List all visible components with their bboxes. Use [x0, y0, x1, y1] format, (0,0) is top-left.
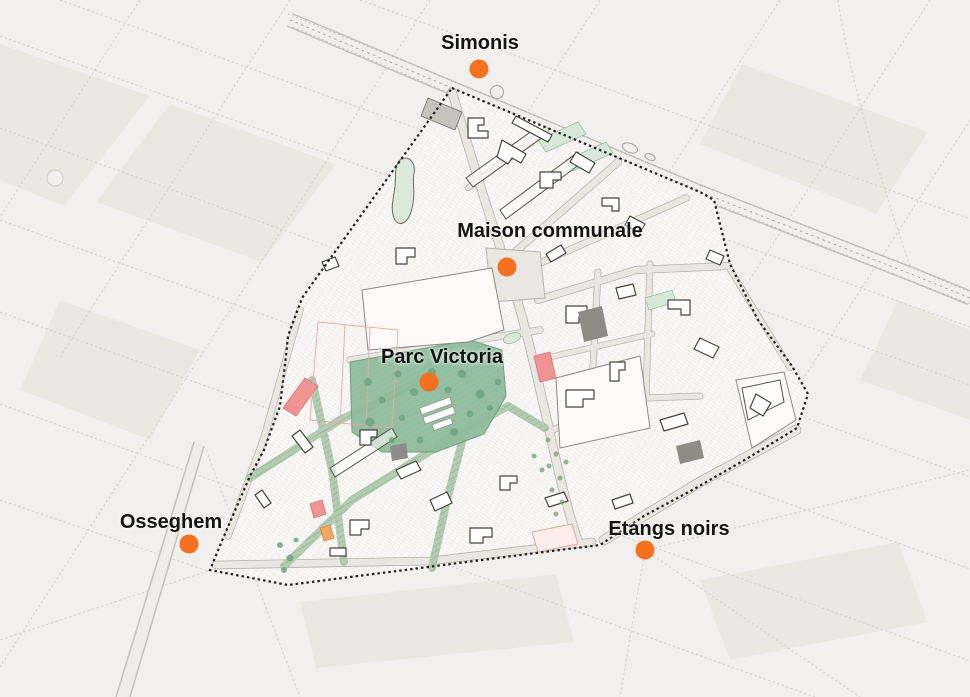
map-svg	[0, 0, 970, 697]
background-roundabout	[47, 170, 63, 186]
map: Simonis Maison communale Parc Victoria O…	[0, 0, 970, 697]
